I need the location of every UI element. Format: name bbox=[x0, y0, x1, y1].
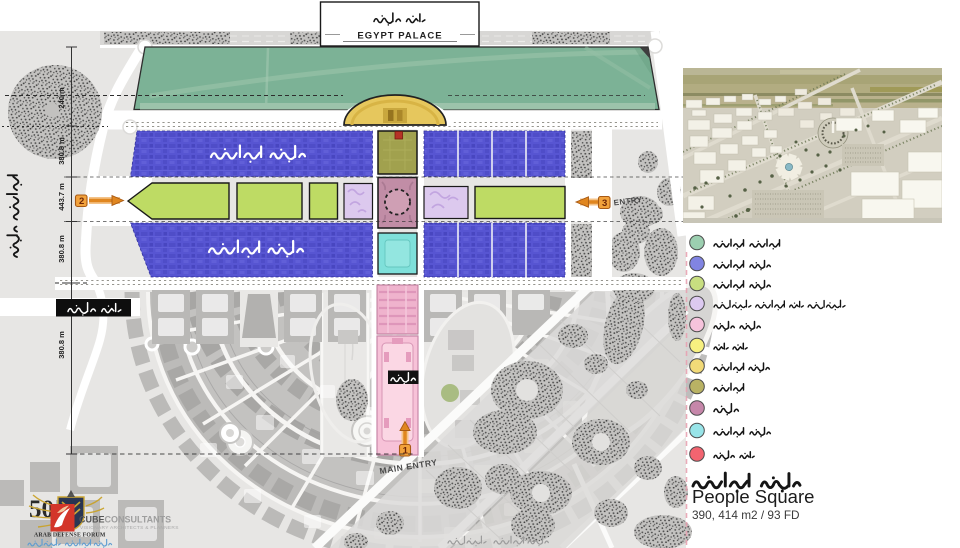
svg-text:CUBECONSULTANTS: CUBECONSULTANTS bbox=[79, 515, 171, 525]
svg-text:EGYPT PALACE: EGYPT PALACE bbox=[357, 31, 442, 42]
svg-text:3: 3 bbox=[602, 198, 607, 209]
svg-text:240 m: 240 m bbox=[57, 87, 66, 109]
svg-text:2: 2 bbox=[79, 196, 84, 207]
svg-text:443.7 m: 443.7 m bbox=[57, 183, 66, 211]
svg-text:ARAB DEFENSE FORUM: ARAB DEFENSE FORUM bbox=[34, 533, 106, 539]
svg-text:380.8 m: 380.8 m bbox=[57, 331, 66, 359]
svg-text:390, 414 m2 / 93 FD: 390, 414 m2 / 93 FD bbox=[692, 508, 800, 522]
svg-text:1: 1 bbox=[403, 446, 409, 457]
svg-text:380.8 m: 380.8 m bbox=[57, 137, 66, 165]
svg-text:380.8 m: 380.8 m bbox=[57, 235, 66, 263]
svg-text:VISIONARY ARCHITECTS & PLANNER: VISIONARY ARCHITECTS & PLANNERS bbox=[80, 525, 179, 531]
svg-text:People Square: People Square bbox=[692, 486, 814, 507]
